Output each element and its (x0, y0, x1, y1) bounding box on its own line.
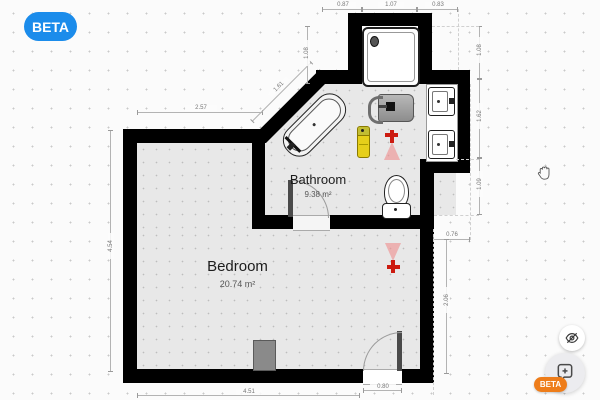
extension-line (434, 215, 479, 216)
dimension-line (417, 9, 458, 10)
sprinkler-icon[interactable] (385, 243, 401, 273)
toilet-bowl-inner (388, 179, 405, 203)
sink-drain-icon (437, 143, 440, 146)
sink-drain-icon (437, 100, 440, 103)
dimension-line (363, 390, 402, 391)
room-label-bedroom: Bedroom (180, 258, 295, 275)
dimension-label: 4.51 (236, 389, 262, 395)
washer-door-icon (386, 102, 395, 111)
dimension-label: 1.62 (477, 103, 483, 129)
door-opening[interactable] (363, 369, 402, 385)
dimension-label: 1.09 (477, 171, 483, 197)
dimension-line (362, 9, 417, 10)
extension-line (432, 26, 479, 27)
dimension-line (137, 112, 263, 113)
dimension-label: 0.76 (439, 232, 465, 238)
sensor-line (359, 144, 368, 145)
sink-faucet-icon (449, 141, 454, 147)
radiator-icon[interactable] (253, 340, 276, 371)
dimension-label: 0.83 (425, 2, 451, 8)
beta-badge: BETA (24, 12, 77, 41)
room-area-bedroom: 20.74 m² (180, 279, 295, 289)
shower-drain-icon (370, 36, 379, 47)
leak-sensor-icon[interactable] (357, 126, 370, 158)
dimension-line (433, 239, 470, 240)
washer-hinge (378, 105, 387, 108)
toilet-tank (382, 203, 411, 219)
dimension-label: 4.54 (108, 233, 114, 259)
sensor-led-icon (361, 129, 364, 132)
extension-line (456, 159, 479, 160)
dimension-label: 2.57 (185, 105, 217, 111)
hand-cursor-icon (537, 165, 552, 187)
toilet-flush-icon (394, 208, 397, 211)
room-area-bathroom: 9.38 m² (268, 190, 368, 199)
room-label-bathroom: Bathroom (268, 172, 368, 187)
toilet-icon[interactable] (381, 173, 411, 219)
wall-segment[interactable] (418, 13, 432, 71)
dimension-label: 1.08 (477, 37, 483, 63)
washer-open-door-arc (368, 96, 383, 124)
washer-body (378, 94, 414, 122)
extension-line (458, 9, 459, 70)
sprinkler-cone (384, 142, 400, 160)
wall-segment[interactable] (123, 129, 137, 383)
eye-off-icon (565, 331, 579, 345)
sprinkler-valve (391, 260, 395, 273)
dimension-label: 0.80 (370, 384, 396, 390)
sink-icon[interactable] (428, 87, 455, 116)
sprinkler-valve (390, 130, 394, 143)
beta-badge-small-label: BETA (540, 380, 561, 389)
wall-segment[interactable] (123, 369, 363, 383)
sink-icon[interactable] (428, 130, 455, 159)
shower-icon[interactable] (362, 27, 420, 87)
sprinkler-cone (385, 243, 401, 261)
sprinkler-icon[interactable] (383, 130, 401, 162)
dimension-label: 1.07 (378, 2, 404, 8)
sink-basin-outline (432, 134, 448, 155)
visibility-toggle-button[interactable] (559, 325, 585, 351)
wall-segment[interactable] (123, 129, 266, 143)
sink-faucet-icon (449, 98, 454, 104)
extension-line (470, 84, 471, 240)
dimension-line (322, 9, 362, 10)
dimension-line (137, 395, 360, 396)
wall-segment[interactable] (456, 70, 470, 173)
dimension-label: 1.08 (304, 40, 310, 66)
wall-segment[interactable] (420, 159, 434, 383)
beta-badge-small: BETA (534, 377, 567, 392)
extension-line (433, 229, 434, 395)
beta-badge-label: BETA (32, 19, 69, 35)
wall-segment[interactable] (252, 136, 265, 229)
dimension-label: 0.87 (330, 2, 356, 8)
dimension-label: 2.06 (444, 287, 450, 313)
sink-basin-outline (432, 91, 448, 112)
floorplan-canvas[interactable]: Bedroom 20.74 m² Bathroom 9.38 m² 2.57 4… (0, 0, 600, 400)
washing-machine-icon[interactable] (368, 93, 412, 121)
